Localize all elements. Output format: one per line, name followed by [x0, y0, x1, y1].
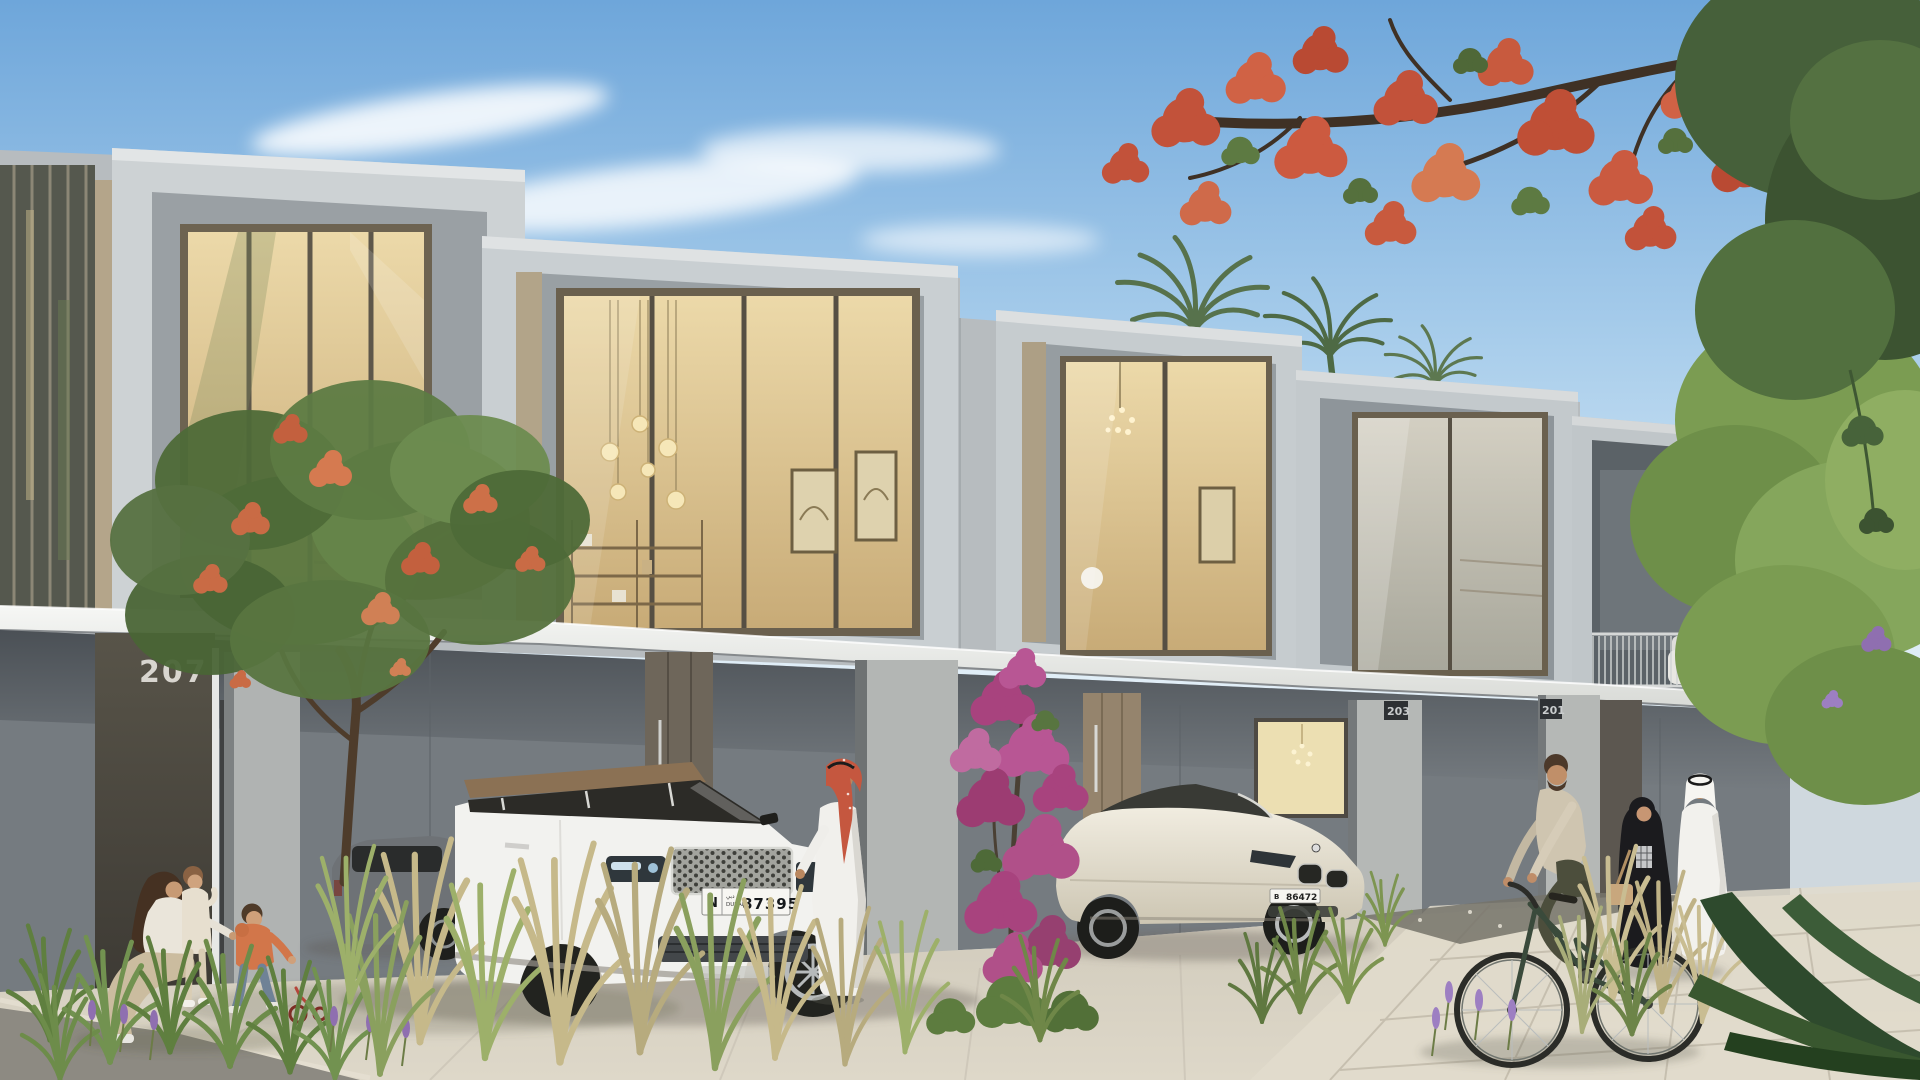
unit-number-sign-203: 203	[1384, 701, 1410, 720]
upper-window-box-3	[996, 310, 1302, 670]
lit-interior-window	[1256, 720, 1346, 816]
suv-license-plate: N دبي DUBAI 87395	[702, 888, 799, 915]
pillar-mid	[855, 660, 958, 985]
framed-art	[1200, 488, 1234, 562]
coupe-license-plate: B 86472	[1270, 889, 1320, 903]
upper-window-box-4	[1296, 370, 1578, 688]
left-window-strips	[0, 165, 95, 620]
hand	[795, 869, 805, 879]
render-scene: 207 203 201	[0, 0, 1920, 1080]
bicycle-seat	[1552, 896, 1574, 900]
face	[1547, 765, 1567, 785]
dress-pattern	[1636, 846, 1652, 868]
unit-number-label: 201	[1542, 704, 1565, 717]
face	[166, 882, 183, 899]
plate-code: B	[1274, 893, 1279, 901]
car-window	[352, 846, 442, 872]
plate-number: 86472	[1286, 893, 1317, 903]
plate-arabic: دبي	[726, 894, 735, 900]
unit-number-label: 203	[1387, 705, 1410, 718]
face	[188, 875, 203, 890]
coupe-roundel	[1312, 844, 1320, 852]
hood	[235, 923, 249, 937]
leg	[202, 952, 204, 1000]
suv-grille	[672, 848, 792, 894]
unit-number-sign-201: 201	[1540, 699, 1565, 719]
face	[1637, 807, 1652, 822]
suv-door-handle	[505, 845, 529, 847]
white-trim	[212, 648, 219, 988]
